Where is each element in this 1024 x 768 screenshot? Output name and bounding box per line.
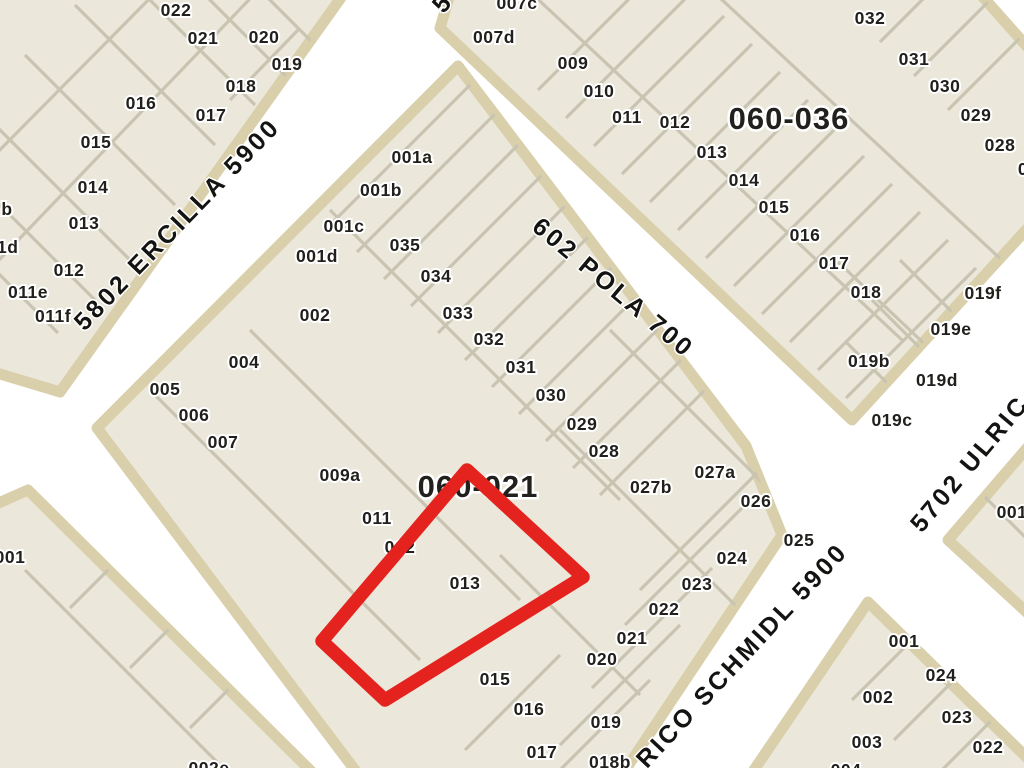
parcel-label-block-060-021-017: 017 (527, 742, 558, 762)
parcel-label-block-060-036-017: 017 (819, 253, 850, 273)
parcel-label-block-060-021-027b: 027b (630, 477, 672, 497)
parcel-label-top-left-block-016: 016 (126, 93, 157, 113)
parcel-label-block-060-021-022: 022 (649, 599, 680, 619)
parcel-label-block-060-021-035: 035 (390, 235, 421, 255)
parcel-label-block-060-036-010: 010 (584, 81, 615, 101)
parcel-label-block-060-036-030: 030 (930, 76, 961, 96)
parcel-label-block-060-021-019: 019 (591, 712, 622, 732)
parcel-label-block-060-021-013: 013 (450, 573, 481, 593)
parcel-label-block-060-036-029: 029 (961, 105, 992, 125)
parcel-label-block-060-021-029: 029 (567, 414, 598, 434)
parcel-label-block-060-036-012: 012 (660, 112, 691, 132)
parcel-label-block-060-021-001c: 001c (324, 216, 365, 236)
parcel-label-block-060-036-018: 018 (851, 282, 882, 302)
parcel-label-east-small-block-001: 001 (997, 502, 1024, 522)
parcel-label-top-left-block-021: 021 (188, 28, 219, 48)
parcel-label-block-060-036-019e: 019e (931, 319, 972, 339)
parcel-label-top-left-block-013: 013 (69, 213, 100, 233)
parcel-label-block-060-021-027a: 027a (695, 462, 736, 482)
parcel-label-block-060-021-026: 026 (741, 491, 772, 511)
parcel-label-block-060-036-019f: 019f (964, 283, 1001, 303)
parcel-label-block-060-036-016: 016 (790, 225, 821, 245)
parcel-label-block-060-021-033: 033 (443, 303, 474, 323)
parcel-label-block-060-036-007c: 007c (497, 0, 538, 13)
parcel-label-block-060-021-018b: 018b (589, 752, 631, 768)
parcel-label-block-060-021-031: 031 (506, 357, 537, 377)
parcel-label-block-060-021-006: 006 (179, 405, 210, 425)
parcel-label-top-left-block-020: 020 (249, 27, 280, 47)
parcel-label-top-left-block-015: 015 (81, 132, 112, 152)
parcel-label-block-060-036-019d: 019d (916, 370, 958, 390)
parcel-label-top-left-block-011e: 011e (8, 282, 48, 302)
parcel-label-block-060-036-013: 013 (697, 142, 728, 162)
parcel-label-block-060-021-015: 015 (480, 669, 511, 689)
parcel-label-bottom-left-block-002e: 002e (189, 758, 230, 768)
parcel-label-block-060-021-001d: 001d (296, 246, 338, 266)
parcel-label-block-060-021-009a: 009a (320, 465, 361, 485)
parcel-label-top-left-block-b: b (1, 199, 12, 219)
parcel-label-top-left-block-011f: 011f (35, 306, 71, 326)
parcel-label-block-060-021-005: 005 (150, 379, 181, 399)
parcel-label-bottom-right-block-004: 004 (831, 760, 862, 768)
parcel-label-block-060-036-031: 031 (899, 49, 930, 69)
parcel-label-bottom-right-block-001: 001 (889, 631, 920, 651)
parcel-label-block-060-036-011: 011 (612, 107, 642, 127)
parcel-label-block-060-021-028: 028 (589, 441, 620, 461)
parcel-label-bottom-right-block-003: 003 (852, 732, 883, 752)
parcel-label-block-060-021-004: 004 (229, 352, 260, 372)
parcel-label-block-060-021-025: 025 (784, 530, 815, 550)
parcel-map: 022021020019018016017015014013b011d01201… (0, 0, 1024, 768)
parcel-label-block-060-021-020: 020 (587, 649, 618, 669)
parcel-label-block-060-036-014: 014 (729, 170, 760, 190)
parcel-label-top-left-block-017: 017 (196, 105, 227, 125)
block-id-label-block-060-036: 060-036 (729, 101, 850, 136)
parcel-label-bottom-left-block-001: 001 (0, 547, 25, 567)
parcel-label-top-left-block-019: 019 (272, 54, 303, 74)
parcel-label-bottom-right-block-002: 002 (863, 687, 894, 707)
parcel-label-block-060-021-016: 016 (514, 699, 545, 719)
parcel-label-block-060-021-032: 032 (474, 329, 505, 349)
parcel-label-block-060-021-007: 007 (208, 432, 239, 452)
parcel-label-block-060-021-034: 034 (421, 266, 452, 286)
parcel-label-block-060-036-0: 0 (1018, 159, 1024, 179)
parcel-label-block-060-036-028: 028 (985, 135, 1016, 155)
parcel-label-bottom-right-block-024: 024 (926, 665, 957, 685)
parcel-label-bottom-right-block-023: 023 (942, 707, 973, 727)
map-canvas: 022021020019018016017015014013b011d01201… (0, 0, 1024, 768)
parcel-label-block-060-036-019b: 019b (848, 351, 890, 371)
parcel-label-block-060-036-015: 015 (759, 197, 790, 217)
parcel-label-top-left-block-014: 014 (78, 177, 109, 197)
parcel-label-block-060-036-009: 009 (558, 53, 589, 73)
parcel-label-block-060-021-024: 024 (717, 548, 748, 568)
parcel-label-block-060-036-032: 032 (855, 8, 886, 28)
parcel-label-block-060-021-030: 030 (536, 385, 567, 405)
parcel-label-top-left-block-012: 012 (54, 260, 85, 280)
parcel-label-block-060-021-023: 023 (682, 574, 713, 594)
parcel-label-block-060-021-011: 011 (362, 508, 392, 528)
parcel-label-top-left-block-018: 018 (226, 76, 257, 96)
parcel-label-block-060-021-001b: 001b (360, 180, 402, 200)
parcel-label-block-060-021-001a: 001a (392, 147, 433, 167)
parcel-label-top-left-block-022: 022 (161, 0, 192, 20)
parcel-label-top-left-block-011d: 011d (0, 237, 18, 257)
parcel-label-block-060-036-019c: 019c (872, 410, 913, 430)
parcel-label-block-060-021-002: 002 (300, 305, 331, 325)
parcel-label-block-060-036-007d: 007d (473, 27, 515, 47)
parcel-label-block-060-021-021: 021 (617, 628, 648, 648)
parcel-label-bottom-right-block-022: 022 (973, 737, 1004, 757)
